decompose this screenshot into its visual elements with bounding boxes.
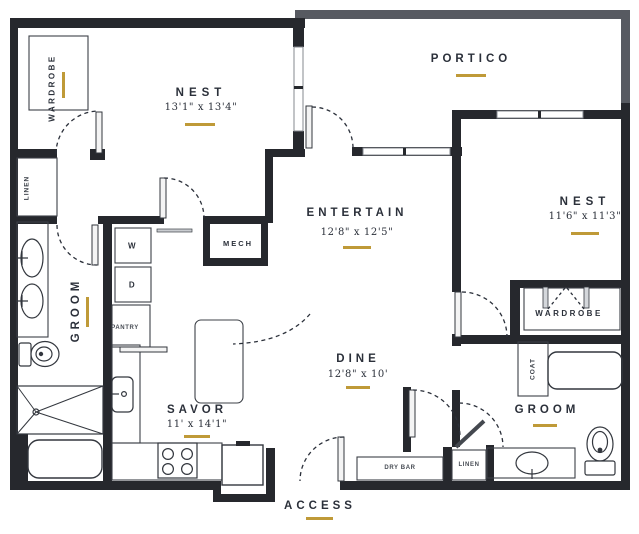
- door-leaf: [306, 106, 312, 148]
- closet-shelf: [157, 229, 192, 232]
- wall-segment: [10, 481, 217, 490]
- accent-underline: [62, 72, 65, 98]
- wall-segment: [510, 280, 520, 342]
- burner: [163, 449, 174, 460]
- bathtub: [28, 440, 102, 478]
- door-leaf: [409, 390, 415, 437]
- room-label-entertain: ENTERTAIN: [307, 207, 408, 219]
- wall-segment: [203, 258, 268, 266]
- door-swing-arc: [57, 225, 97, 265]
- toilet-bowl-inner: [36, 347, 52, 361]
- wall-segment: [510, 280, 630, 288]
- closet-label-linen-main: LINEN: [24, 176, 31, 201]
- closet-label-wardrobe-main: WARDROBE: [48, 54, 57, 122]
- bifold-door-line: [548, 288, 565, 309]
- bathtub: [548, 352, 622, 389]
- room-label-mech: MECH: [223, 239, 253, 248]
- bifold-jamb: [543, 287, 548, 308]
- door-leaf: [96, 112, 102, 153]
- accent-underline: [306, 517, 333, 520]
- wall-segment: [293, 18, 304, 47]
- toilet-tank: [19, 343, 31, 366]
- room-label-savor: SAVOR: [167, 404, 227, 416]
- wardrobe-closet: [29, 36, 88, 110]
- wall-segment: [10, 149, 57, 158]
- room-label-dine: DINE: [336, 353, 379, 365]
- refrigerator-handle: [236, 441, 250, 446]
- door-leaf: [160, 178, 166, 218]
- wall-segment: [443, 447, 452, 481]
- toilet-flush-dot: [39, 352, 42, 355]
- wall-segment: [203, 216, 268, 224]
- kitchen-island: [195, 320, 243, 403]
- closet-label-wardrobe-second: WARDROBE: [535, 309, 603, 318]
- accent-underline: [185, 123, 215, 126]
- dim-label-dine: 12'8" x 10': [328, 369, 389, 380]
- kitchen-fixtures: [112, 377, 263, 485]
- appliance-label-washer: W: [128, 242, 138, 251]
- accent-underline: [86, 297, 89, 327]
- window-mullion: [403, 148, 406, 155]
- door-swing-arc: [164, 178, 204, 218]
- door-swing-arc: [56, 111, 99, 154]
- burner: [182, 449, 193, 460]
- bathroom-main-fixtures: [16, 239, 103, 478]
- door-swing-arcs: [56, 107, 584, 481]
- bifold-jamb: [584, 287, 589, 308]
- window-mullion: [294, 86, 303, 89]
- shower-slope-lines: [17, 386, 103, 434]
- accent-underline: [346, 386, 370, 389]
- bifold-door-line: [567, 288, 584, 309]
- floor-plan: NEST 13'1" x 13'4" PORTICO NEST 11'6" x …: [0, 0, 639, 534]
- dim-label-nest-1: 13'1" x 13'4": [165, 102, 238, 113]
- wall-segment: [17, 434, 28, 481]
- wall-segment: [265, 149, 273, 223]
- wall-segment: [340, 481, 630, 490]
- wall-segment: [452, 335, 630, 344]
- floor-plan-drawing: [0, 0, 639, 534]
- wall-segment: [266, 448, 275, 502]
- wall-segment: [103, 216, 112, 481]
- door-swing-arc: [462, 292, 507, 337]
- accent-underline: [571, 232, 599, 235]
- room-label-nest-2: NEST: [560, 196, 611, 208]
- toilet-base: [585, 461, 615, 475]
- closet-label-pantry: PANTRY: [111, 325, 139, 331]
- door-swing-arc: [233, 314, 310, 344]
- door-leaf: [338, 437, 344, 481]
- dim-label-savor: 11' x 14'1": [167, 419, 228, 430]
- burner: [163, 464, 174, 475]
- window-mullion: [538, 111, 541, 118]
- wall-segment: [621, 10, 630, 107]
- closet-label-linen-second: LINEN: [459, 462, 480, 468]
- room-label-access: ACCESS: [284, 500, 356, 512]
- accent-underline: [343, 246, 371, 249]
- door-leaf: [92, 225, 98, 265]
- room-label-groom-second: GROOM: [515, 404, 580, 416]
- wall-segment: [213, 494, 275, 502]
- room-label-portico: PORTICO: [431, 53, 511, 65]
- door-swing-arc: [300, 437, 344, 481]
- wall-segment: [10, 18, 305, 28]
- wall-segment: [621, 103, 630, 490]
- door-swing-arc: [312, 107, 353, 148]
- accent-underline: [533, 424, 557, 427]
- door-leaf: [120, 347, 167, 352]
- dim-label-entertain: 12'8" x 12'5": [321, 227, 394, 238]
- toilet-flush-dot: [598, 448, 602, 452]
- appliance-label-dryer: D: [129, 281, 137, 290]
- accent-underline: [184, 435, 210, 438]
- accent-underline: [456, 74, 486, 77]
- counter-label-dry-bar: DRY BAR: [384, 465, 415, 471]
- room-label-nest-1: NEST: [176, 87, 227, 99]
- closet-label-coat: COAT: [530, 358, 537, 380]
- burner: [182, 464, 193, 475]
- dim-label-nest-2: 11'6" x 11'3": [549, 211, 622, 222]
- window: [363, 148, 450, 155]
- room-label-groom-main: GROOM: [70, 278, 82, 343]
- door-leaf: [455, 292, 461, 337]
- shower-pan: [17, 386, 103, 434]
- wall-segment: [295, 10, 630, 19]
- refrigerator: [222, 445, 263, 485]
- wall-segment: [452, 110, 461, 292]
